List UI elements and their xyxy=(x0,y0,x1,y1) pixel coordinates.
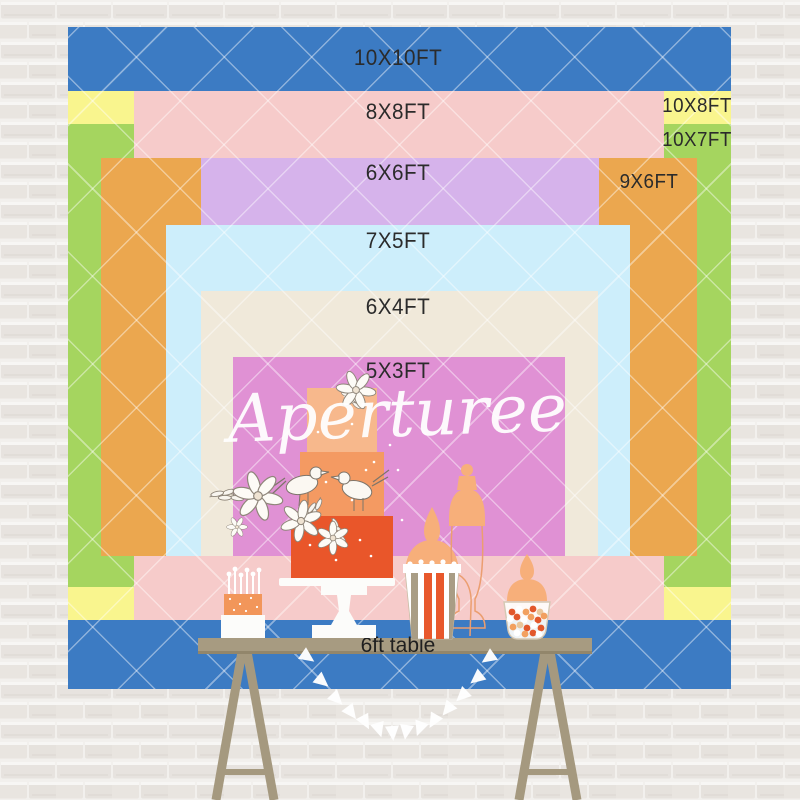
size-label-9x6ft: 9X6FT xyxy=(620,171,679,194)
size-label-6x4ft: 6X4FT xyxy=(366,294,430,320)
size-comparison-chart: 10X10FT 8X8FT 6X6FT 7X5FT 6X4FT 5X3FT 10… xyxy=(68,27,731,689)
size-label-10x10ft: 10X10FT xyxy=(354,45,442,71)
size-label-5x3ft: 5X3FT xyxy=(366,358,430,384)
size-label-10x7ft: 10X7FT xyxy=(662,129,732,152)
size-label-7x5ft: 7X5FT xyxy=(366,228,430,254)
size-rect-5x3ft xyxy=(233,357,565,556)
size-label-8x8ft: 8X8FT xyxy=(366,99,430,125)
product-image: 10X10FT 8X8FT 6X6FT 7X5FT 6X4FT 5X3FT 10… xyxy=(0,0,800,800)
size-label-6x6ft: 6X6FT xyxy=(366,160,430,186)
size-label-10x8ft: 10X8FT xyxy=(662,95,732,118)
